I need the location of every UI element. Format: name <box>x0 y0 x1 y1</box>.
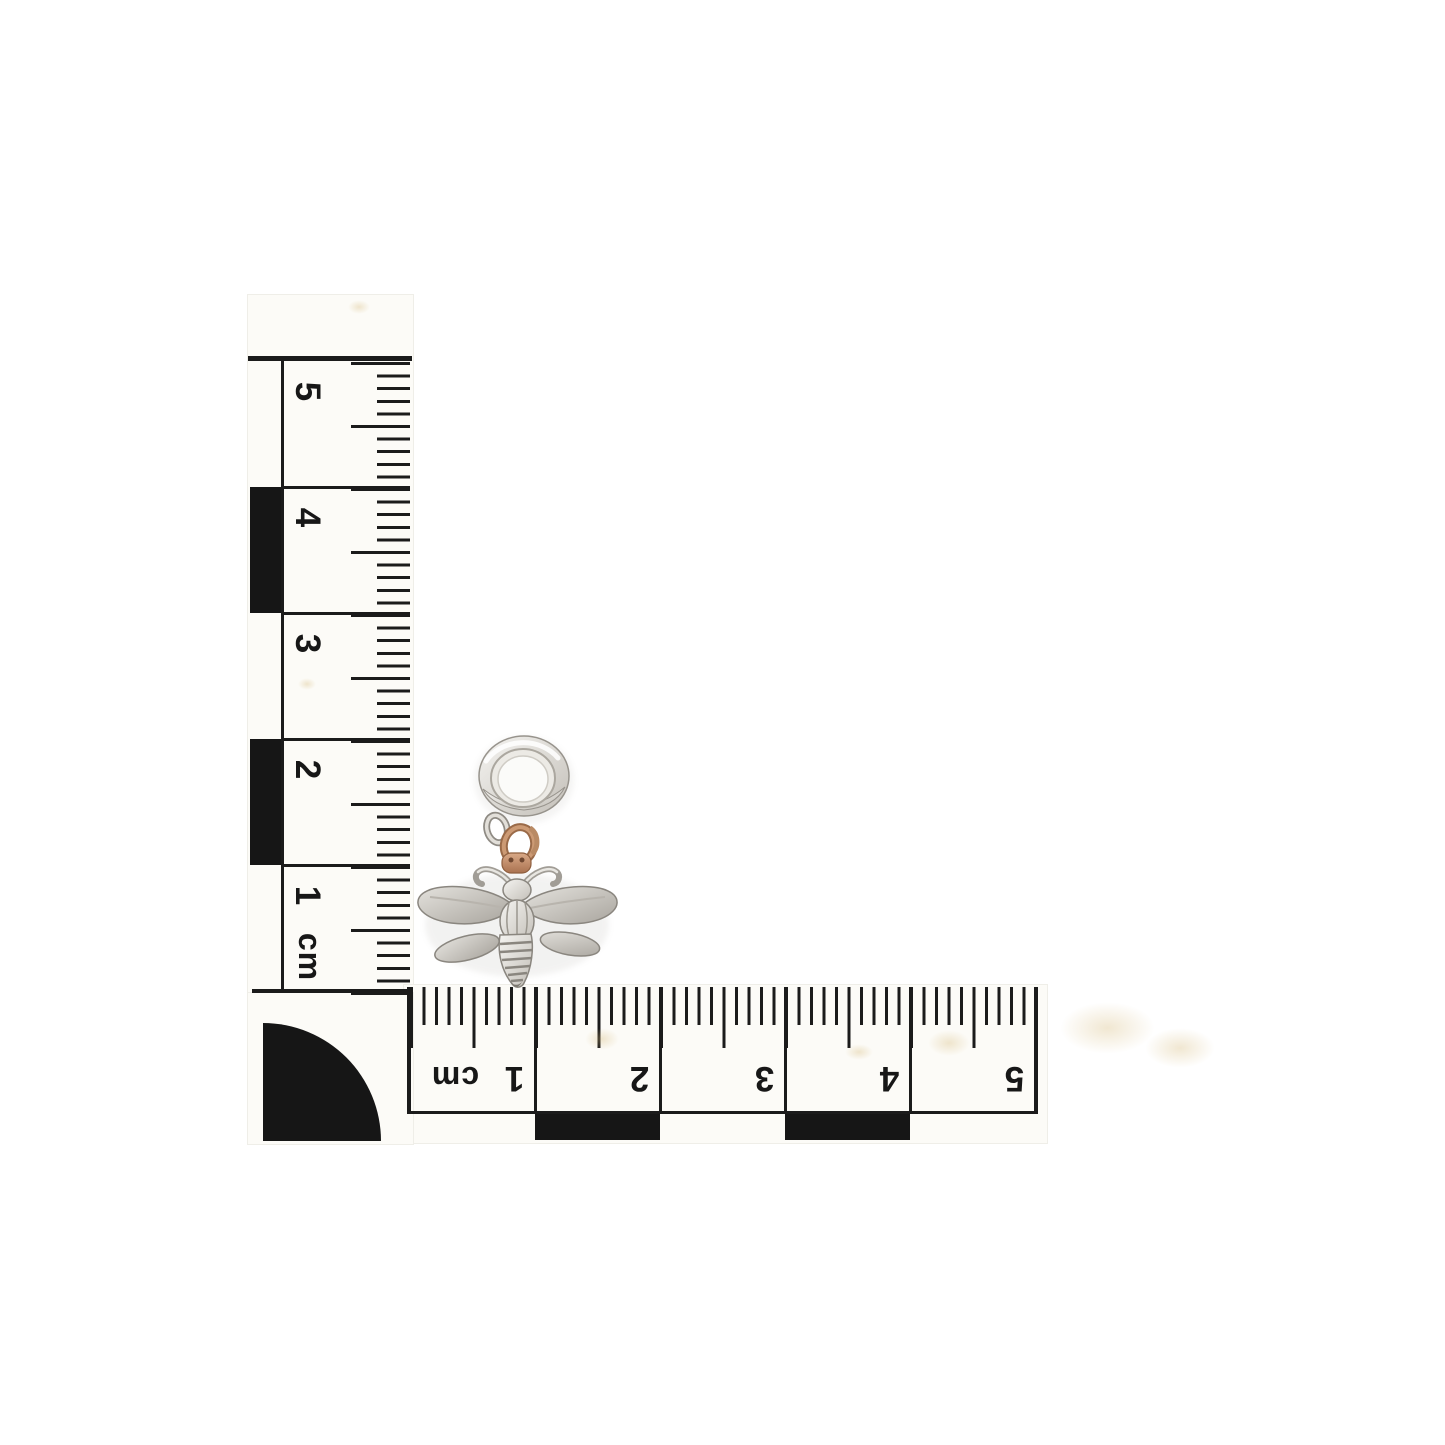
vertical-ruler-label-4: 4 <box>285 486 329 550</box>
vertical-ruler-label-5: 5 <box>285 360 329 424</box>
vertical-ruler-label-3: 3 <box>285 612 329 676</box>
horizontal-ruler-bottom-line <box>407 1111 1038 1114</box>
scale-block <box>250 487 281 613</box>
paper-stain <box>928 1030 970 1056</box>
horizontal-ruler-label-cm: cm <box>423 1056 487 1100</box>
horizontal-ruler-label-1: 1 <box>482 1056 546 1100</box>
horizontal-ruler-label-3: 3 <box>732 1056 796 1100</box>
paper-stain <box>845 1044 873 1060</box>
horizontal-ruler-label-4: 4 <box>857 1056 921 1100</box>
vertical-ruler-label-cm: cm <box>288 925 332 989</box>
horizontal-ruler-label-2: 2 <box>607 1056 671 1100</box>
rose-gold-jump-ring <box>500 824 538 873</box>
vertical-ruler-top-line <box>248 356 412 361</box>
vertical-ruler-label-2: 2 <box>285 738 329 802</box>
bee-charm-photo <box>405 725 630 1015</box>
photo-canvas: 5 4 3 2 1 cm cm 1 2 3 4 5 <box>0 0 1445 1445</box>
vertical-ruler-label-1: 1 <box>285 864 329 928</box>
vertical-ruler-divider-line <box>281 356 284 993</box>
paper-stain <box>298 678 316 690</box>
scale-block <box>785 1114 910 1140</box>
scale-block <box>250 739 281 865</box>
paper-stain <box>585 1028 619 1050</box>
silver-bail <box>479 736 569 816</box>
paper-stain <box>1145 1028 1215 1068</box>
paper-stain <box>348 300 370 314</box>
paper-stain <box>1060 1002 1155 1054</box>
horizontal-ruler-label-5: 5 <box>982 1056 1046 1100</box>
scale-block <box>535 1114 660 1140</box>
